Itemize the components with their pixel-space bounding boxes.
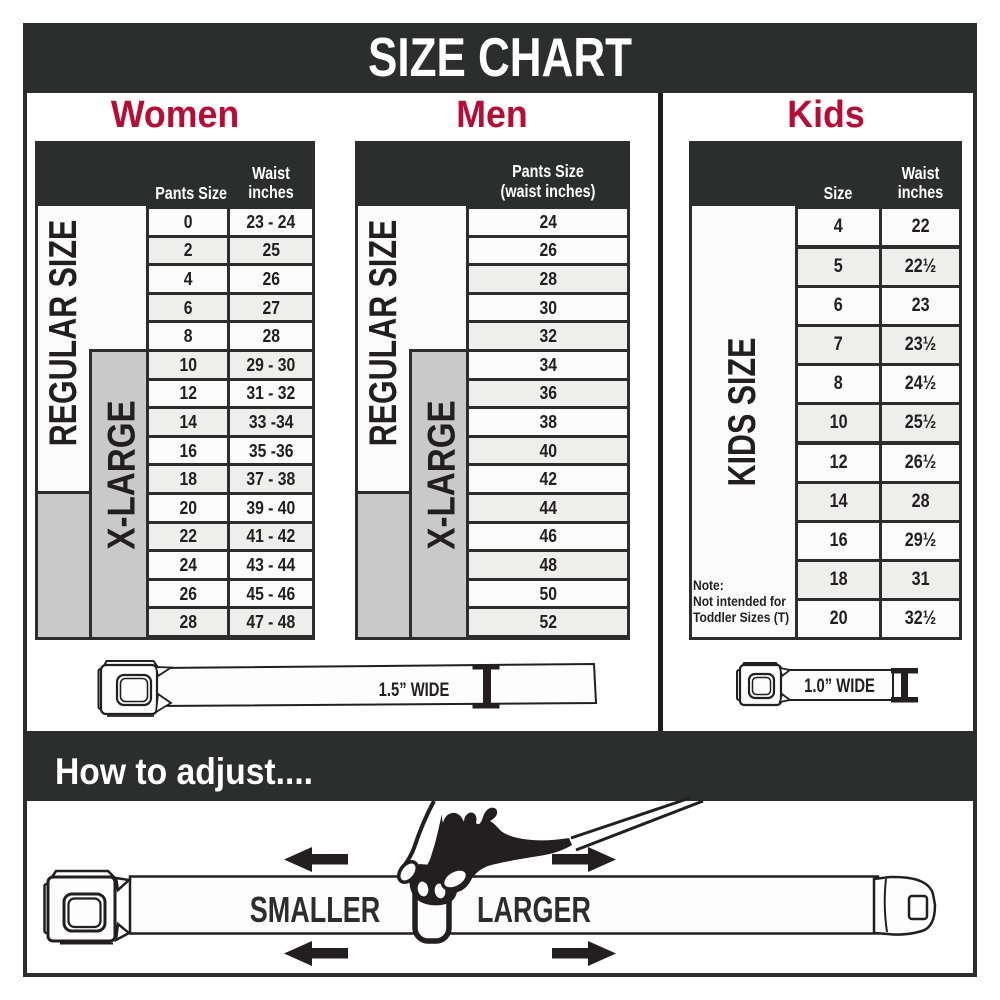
svg-text:LARGER: LARGER	[477, 889, 591, 930]
svg-text:1.5” WIDE: 1.5” WIDE	[379, 679, 450, 700]
svg-text:SMALLER: SMALLER	[250, 889, 380, 930]
svg-text:How to adjust....: How to adjust....	[55, 752, 313, 793]
svg-text:1.0” WIDE: 1.0” WIDE	[804, 675, 875, 696]
